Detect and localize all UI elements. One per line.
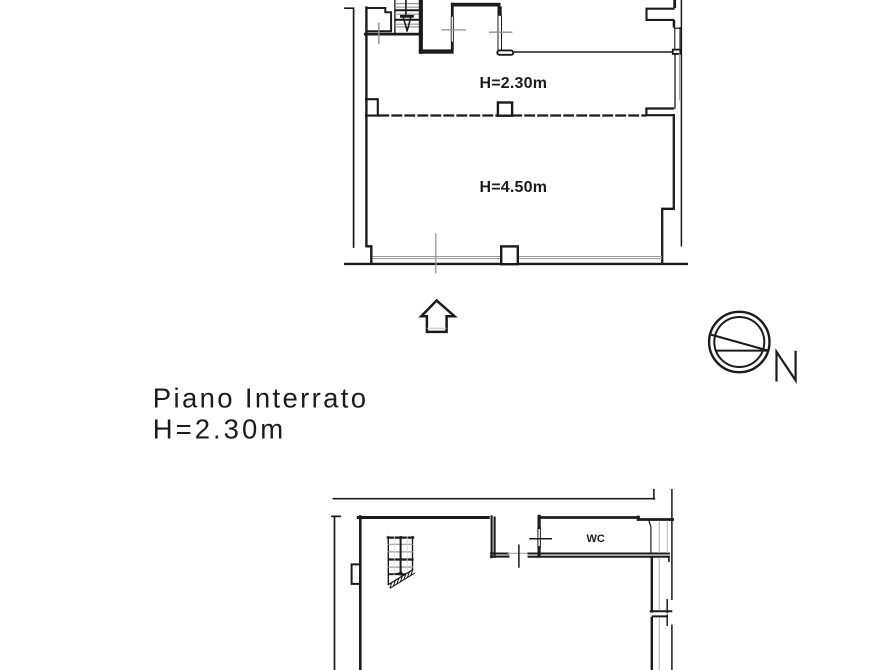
svg-text:H=2.30m: H=2.30m [153, 413, 286, 444]
svg-text:WC: WC [587, 533, 605, 545]
svg-text:H=4.50m: H=4.50m [480, 179, 548, 196]
svg-text:H=2.30m: H=2.30m [480, 75, 548, 92]
svg-text:Piano Interrato: Piano Interrato [153, 383, 369, 414]
